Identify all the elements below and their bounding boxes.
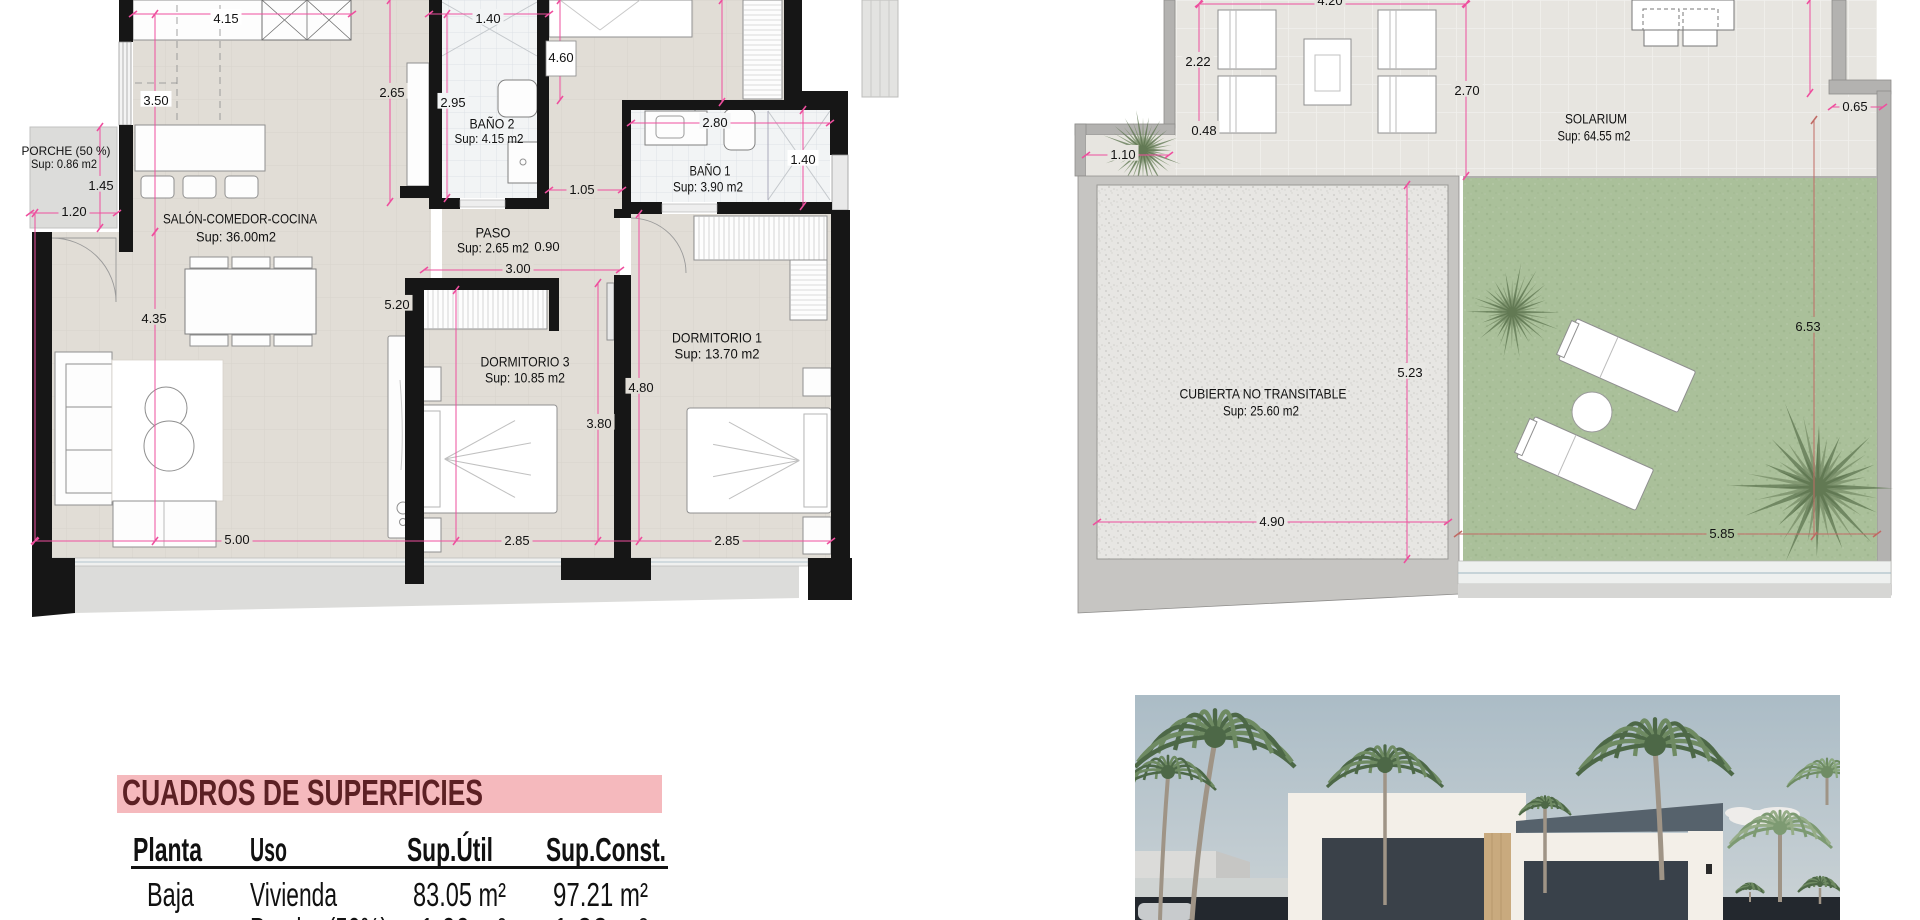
svg-text:5.20: 5.20: [384, 297, 409, 312]
svg-text:Porche (50%): Porche (50%): [250, 911, 388, 920]
svg-text:Sup: 0.86 m2: Sup: 0.86 m2: [31, 157, 97, 171]
svg-text:1.20: 1.20: [61, 204, 86, 219]
svg-text:BAÑO 1: BAÑO 1: [690, 162, 731, 178]
svg-text:SALÓN-COMEDOR-COCINA: SALÓN-COMEDOR-COCINA: [163, 210, 318, 226]
svg-text:1.66 m²: 1.66 m²: [420, 911, 506, 920]
svg-text:2.85: 2.85: [714, 533, 739, 548]
svg-text:1.66 m²: 1.66 m²: [553, 911, 648, 920]
svg-text:4.60: 4.60: [548, 50, 573, 65]
svg-text:DORMITORIO 1: DORMITORIO 1: [672, 329, 762, 345]
svg-text:CUADROS DE SUPERFICIES: CUADROS DE SUPERFICIES: [122, 772, 483, 813]
svg-text:Sup: 36.00m2: Sup: 36.00m2: [196, 228, 276, 244]
svg-text:2.70: 2.70: [1454, 83, 1479, 98]
svg-text:PASO: PASO: [476, 224, 511, 240]
svg-text:4.15: 4.15: [213, 11, 238, 26]
svg-text:4.20: 4.20: [1317, 0, 1342, 8]
svg-text:1.40: 1.40: [790, 152, 815, 167]
svg-text:PORCHE (50 %): PORCHE (50 %): [22, 144, 111, 158]
svg-text:Sup.Const.: Sup.Const.: [546, 831, 666, 868]
svg-text:5.85: 5.85: [1709, 526, 1734, 541]
svg-text:Vivienda: Vivienda: [250, 876, 337, 913]
svg-text:Sup: 2.65 m2: Sup: 2.65 m2: [457, 240, 529, 255]
svg-text:5.23: 5.23: [1397, 365, 1422, 380]
svg-text:2.95: 2.95: [440, 95, 465, 110]
svg-text:Sup: 10.85 m2: Sup: 10.85 m2: [485, 370, 565, 385]
svg-text:0.48: 0.48: [1191, 123, 1216, 138]
svg-text:5.00: 5.00: [224, 532, 249, 547]
svg-text:BAÑO 2: BAÑO 2: [470, 116, 515, 131]
svg-text:4.35: 4.35: [141, 311, 166, 326]
svg-text:4.80: 4.80: [628, 380, 653, 395]
svg-text:4.90: 4.90: [1259, 514, 1284, 529]
svg-text:Sup: 64.55 m2: Sup: 64.55 m2: [1558, 128, 1631, 143]
svg-text:1.05: 1.05: [569, 182, 594, 197]
svg-text:0.65: 0.65: [1842, 99, 1867, 114]
svg-text:Sup: 3.90 m2: Sup: 3.90 m2: [673, 179, 743, 194]
svg-text:2.22: 2.22: [1185, 54, 1210, 69]
svg-text:3.50: 3.50: [143, 93, 168, 108]
svg-text:83.05 m²: 83.05 m²: [413, 876, 506, 913]
svg-text:97.21 m²: 97.21 m²: [553, 876, 648, 913]
svg-text:1.10: 1.10: [1110, 147, 1135, 162]
svg-text:2.85: 2.85: [504, 533, 529, 548]
svg-text:Sup: 25.60 m2: Sup: 25.60 m2: [1223, 403, 1299, 418]
svg-text:Baja: Baja: [147, 876, 194, 913]
svg-text:2.65: 2.65: [379, 85, 404, 100]
svg-text:SOLARIUM: SOLARIUM: [1565, 111, 1627, 126]
svg-text:Uso: Uso: [250, 831, 287, 868]
svg-text:CUBIERTA NO TRANSITABLE: CUBIERTA NO TRANSITABLE: [1180, 385, 1347, 401]
svg-text:6.53: 6.53: [1795, 319, 1820, 334]
svg-text:Sup.Útil: Sup.Útil: [407, 831, 493, 868]
svg-text:0.90: 0.90: [534, 239, 559, 254]
svg-text:1.40: 1.40: [475, 11, 500, 26]
svg-text:3.00: 3.00: [505, 261, 530, 276]
svg-text:Sup: 13.70 m2: Sup: 13.70 m2: [675, 346, 760, 361]
svg-text:1.45: 1.45: [88, 178, 113, 193]
svg-text:Planta: Planta: [133, 831, 202, 868]
svg-text:3.80: 3.80: [586, 416, 611, 431]
svg-text:Sup: 4.15 m2: Sup: 4.15 m2: [455, 131, 524, 146]
svg-text:2.80: 2.80: [702, 115, 727, 130]
svg-text:DORMITORIO 3: DORMITORIO 3: [481, 353, 570, 369]
